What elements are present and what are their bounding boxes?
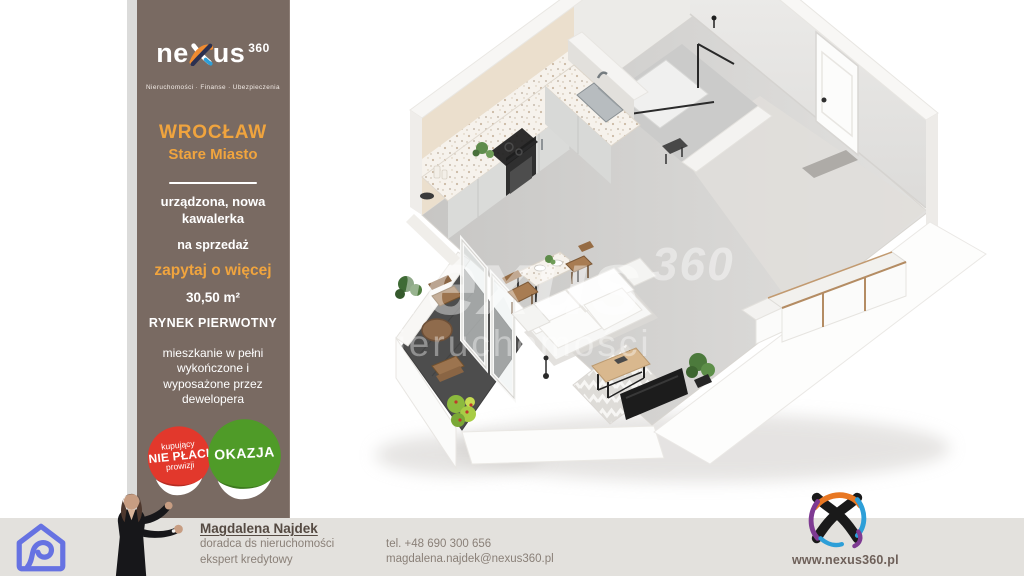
location-district: Stare Miasto [137, 146, 289, 163]
area-value: 30,50 m² [137, 290, 289, 305]
brand-text-post: us [213, 38, 246, 69]
brand-text-pre: ne [156, 38, 189, 69]
sidebar: ne us 360 Nieruchomości · Finanse · Ubez… [137, 0, 290, 518]
badge-green-label: OKAZJA [214, 445, 275, 463]
agent-head [124, 494, 140, 510]
kitchen-jars [434, 166, 440, 178]
agent-role-2: ekspert kredytowy [200, 554, 334, 568]
market-type: RYNEK PIERWOTNY [137, 316, 289, 330]
watermark-sub: nieruchomości [374, 323, 652, 364]
listing-flyer: ne us 360 Nieruchomości · Finanse · Ubez… [0, 0, 1024, 576]
offer-type: na sprzedaż [137, 238, 289, 252]
website-url: www.nexus360.pl [792, 553, 899, 567]
kitchen-bowl [420, 193, 434, 200]
property-details: mieszkanie w pełni wykończone i wyposażo… [137, 346, 289, 407]
location-city: WROCŁAW [137, 122, 289, 144]
watermark-brand: nexus [368, 232, 644, 334]
house-logo-icon [13, 519, 69, 575]
watermark-sup: 360 [652, 238, 735, 290]
badge-red-line3: prowizji [166, 461, 195, 473]
agent-hand [165, 502, 173, 510]
page-edge-strip [127, 0, 137, 518]
divider-line [169, 182, 257, 184]
agent-phone: tel. +48 690 300 656 [386, 537, 554, 552]
wall-lamp [712, 16, 717, 21]
floorplan-3d-render: nexus360 nieruchomości [310, 0, 1024, 508]
property-description: urządzona, nowa kawalerka [137, 194, 289, 228]
agent-role-1: doradca ds nieruchomości [200, 538, 334, 552]
brand-tagline: Nieruchomości · Finanse · Ubezpieczenia [137, 84, 289, 91]
brand-sup: 360 [248, 41, 270, 55]
footer-brand-x-icon [806, 486, 868, 550]
agent-photo [90, 490, 218, 576]
agent-email: magdalena.najdek@nexus360.pl [386, 552, 554, 567]
contact-info: tel. +48 690 300 656 magdalena.najdek@ne… [386, 537, 554, 567]
brand-x-icon [189, 42, 213, 66]
door-handle [822, 98, 827, 103]
agent-info: Magdalena Najdek doradca ds nieruchomośc… [200, 521, 334, 568]
cta-text: zapytaj o więcej [137, 262, 289, 280]
agent-name: Magdalena Najdek [200, 521, 334, 536]
agent-hand [174, 525, 183, 534]
badge-no-commission: kupujący NIE PŁACI prowizji [145, 424, 213, 498]
brand-logo: ne us 360 [137, 38, 289, 69]
